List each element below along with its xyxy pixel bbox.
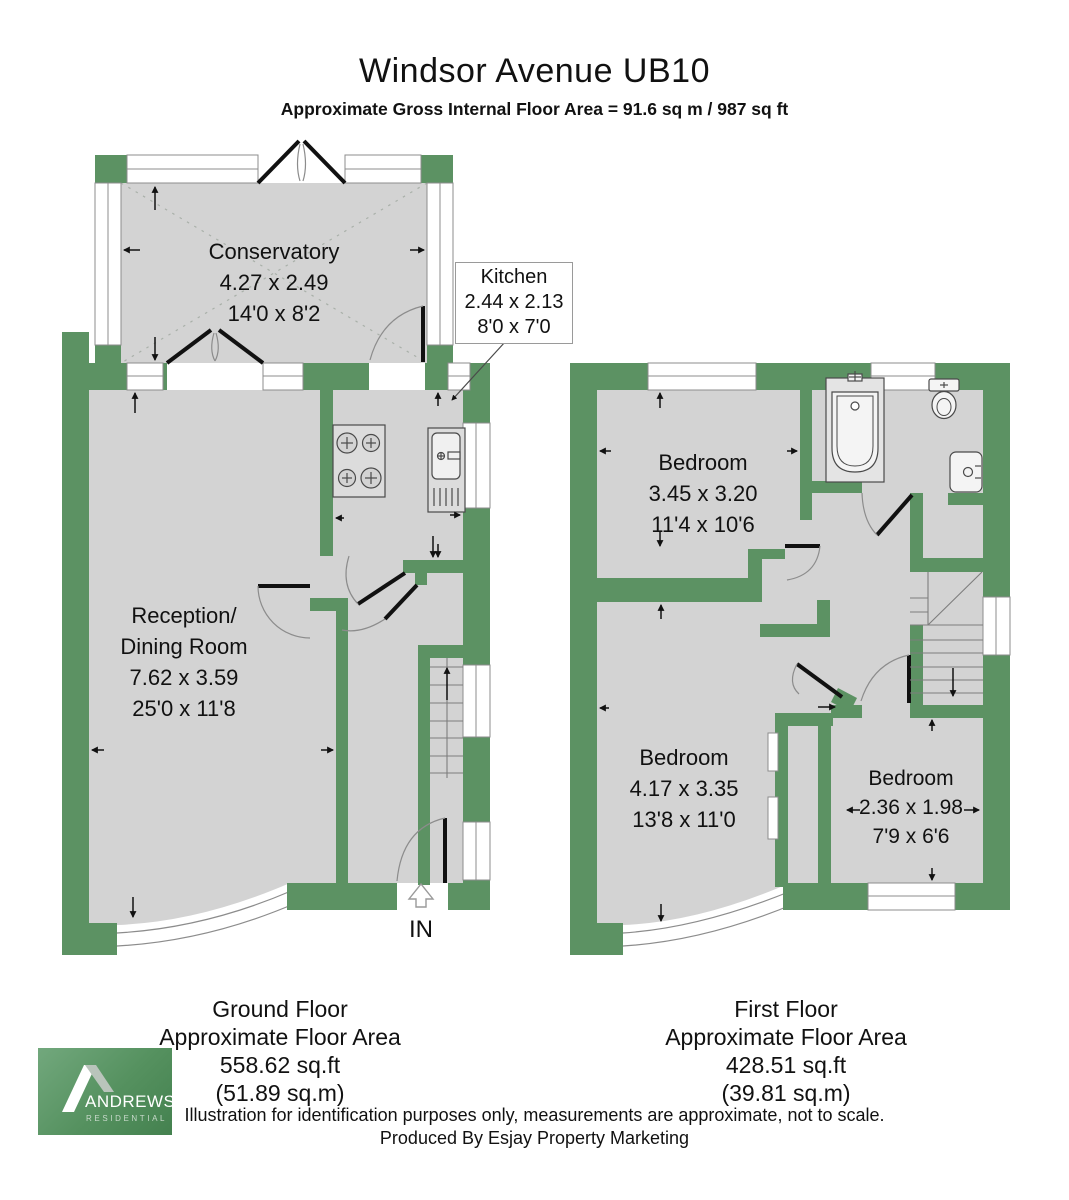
room-imperial: 14'0 x 8'2 <box>209 298 340 329</box>
kitchen-label: Kitchen 2.44 x 2.13 8'0 x 7'0 <box>455 262 573 344</box>
summary-line: 428.51 sq.ft <box>665 1051 907 1079</box>
bathroom-sink-icon <box>950 452 982 492</box>
bedroom2-label: Bedroom 4.17 x 3.35 13'8 x 11'0 <box>630 742 739 835</box>
andrews-residential-logo: ANDREWS RESIDENTIAL <box>38 1048 172 1135</box>
bedroom3-label: Bedroom 2.36 x 1.98 7'9 x 6'6 <box>859 764 963 851</box>
reception-label: Reception/ Dining Room 7.62 x 3.59 25'0 … <box>120 600 247 724</box>
bathtub-icon <box>826 371 884 482</box>
first-floor-plan <box>570 363 1010 955</box>
ground-floor-summary: Ground Floor Approximate Floor Area 558.… <box>159 995 401 1107</box>
room-metric: 4.27 x 2.49 <box>209 267 340 298</box>
room-metric: 2.36 x 1.98 <box>859 793 963 822</box>
room-name: Bedroom <box>630 742 739 773</box>
summary-line: First Floor <box>665 995 907 1023</box>
room-imperial: 13'8 x 11'0 <box>630 804 739 835</box>
room-name: Conservatory <box>209 236 340 267</box>
room-name: Reception/ <box>120 600 247 631</box>
logo-brand-text: ANDREWS <box>85 1092 175 1112</box>
room-name: Bedroom <box>649 447 758 478</box>
summary-line: (51.89 sq.m) <box>159 1079 401 1107</box>
summary-line: Ground Floor <box>159 995 401 1023</box>
room-imperial: 8'0 x 7'0 <box>456 315 572 340</box>
room-imperial: 7'9 x 6'6 <box>859 822 963 851</box>
logo-division-text: RESIDENTIAL <box>86 1114 167 1123</box>
floorplan-page: IN <box>0 0 1069 1200</box>
toilet-icon <box>929 379 959 419</box>
room-metric: 7.62 x 3.59 <box>120 662 247 693</box>
kitchen-sink-icon <box>428 428 465 512</box>
room-metric: 3.45 x 3.20 <box>649 478 758 509</box>
room-name: Kitchen <box>456 265 572 290</box>
room-imperial: 25'0 x 11'8 <box>120 693 247 724</box>
room-metric: 4.17 x 3.35 <box>630 773 739 804</box>
page-title: Windsor Avenue UB10 <box>0 52 1069 91</box>
room-imperial: 11'4 x 10'6 <box>649 509 758 540</box>
summary-line: Approximate Floor Area <box>665 1023 907 1051</box>
room-name: Bedroom <box>859 764 963 793</box>
bedroom1-label: Bedroom 3.45 x 3.20 11'4 x 10'6 <box>649 447 758 540</box>
summary-line: (39.81 sq.m) <box>665 1079 907 1107</box>
entrance-in-arrow-icon <box>409 884 433 907</box>
page-subtitle: Approximate Gross Internal Floor Area = … <box>0 99 1069 120</box>
summary-line: Approximate Floor Area <box>159 1023 401 1051</box>
entrance-in-label: IN <box>409 916 433 943</box>
summary-line: 558.62 sq.ft <box>159 1051 401 1079</box>
stove-icon <box>333 425 385 497</box>
room-name: Dining Room <box>120 631 247 662</box>
first-floor-summary: First Floor Approximate Floor Area 428.5… <box>665 995 907 1107</box>
room-metric: 2.44 x 2.13 <box>456 290 572 315</box>
conservatory-label: Conservatory 4.27 x 2.49 14'0 x 8'2 <box>209 236 340 329</box>
